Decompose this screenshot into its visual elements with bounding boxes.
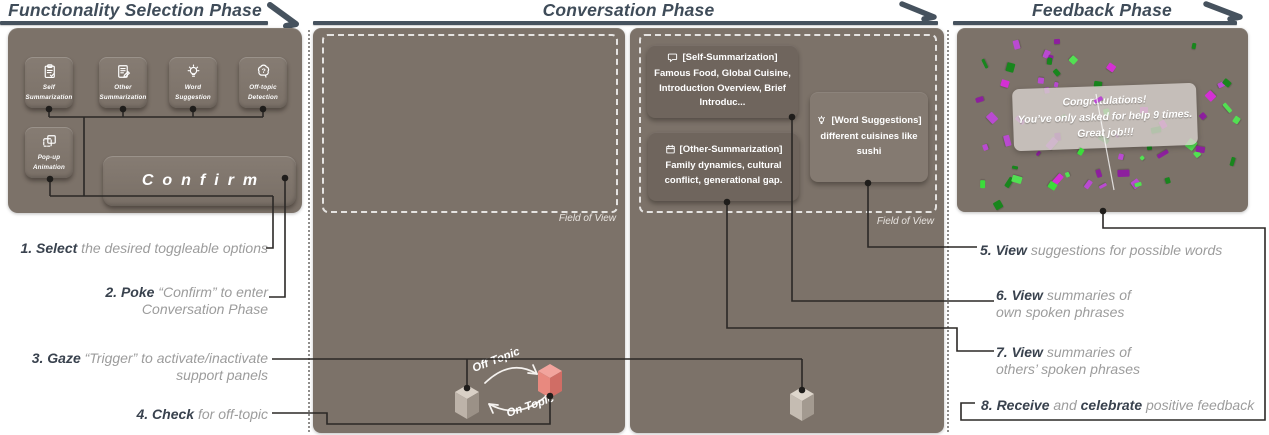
brain-question-icon: ? [255, 63, 272, 80]
confetti-piece [1054, 81, 1059, 87]
confetti-piece [1196, 146, 1206, 153]
other-summarization-card[interactable]: [Other-Summarization] Family dynamics, c… [648, 132, 799, 201]
lightbulb-icon [185, 63, 202, 80]
field-of-view-label: Field of View [498, 213, 616, 224]
confetti-piece [1222, 103, 1232, 114]
toggle-word-suggestion[interactable]: Word Suggestion [169, 57, 217, 108]
confetti-piece [1004, 177, 1014, 189]
confetti-piece [1012, 175, 1023, 184]
conversation-panel-active: Field of View [Self-Summarization] Famou… [630, 28, 944, 433]
toggle-label: Off-topic Detection [248, 83, 278, 102]
confetti-piece [1118, 170, 1130, 177]
svg-text:?: ? [261, 68, 265, 75]
word-suggestions-card[interactable]: [Word Suggestions] different cuisines li… [810, 92, 928, 182]
card-body: Family dynamics, cultural conflict, gene… [654, 159, 793, 188]
document-edit-icon [115, 63, 132, 80]
card-title: [Self-Summarization] [682, 52, 777, 63]
phase-divider [308, 30, 310, 432]
toggle-label: Word Suggestion [175, 83, 211, 102]
confetti-piece [993, 200, 1004, 211]
confetti-piece [982, 143, 988, 150]
toggle-popup-animation[interactable]: Pop-up Animation [25, 127, 73, 178]
step-5-view-word-suggestions: 5. View suggestions for possible words [980, 242, 1269, 259]
conversation-panel-empty: Field of View [313, 28, 625, 433]
feedback-message-line: Great job!!! [1077, 124, 1134, 142]
confetti-piece [1047, 54, 1054, 62]
step-8-receive-feedback: 8. Receive and celebrate positive feedba… [981, 397, 1269, 414]
toggle-other-summarization[interactable]: Other Summarization [99, 57, 147, 108]
confetti-piece [1000, 79, 1009, 88]
confetti-piece [1047, 57, 1053, 65]
phase-divider [947, 30, 949, 432]
confetti-piece [986, 111, 999, 124]
bulb-icon [816, 115, 827, 126]
header-bar-conversation [313, 21, 938, 25]
confetti-piece [1064, 172, 1069, 178]
confetti-piece [1038, 77, 1045, 83]
confetti-piece [1012, 165, 1019, 169]
confetti-piece [1118, 153, 1125, 160]
confetti-piece [1084, 179, 1093, 189]
confetti-piece [1047, 181, 1057, 191]
step-2-poke-confirm: 2. Poke “Confirm” to enter Conversation … [0, 284, 268, 318]
header-bar-functionality [0, 21, 268, 25]
confetti-piece [1003, 135, 1011, 147]
confetti-piece [1005, 62, 1015, 72]
header-conversation-phase: Conversation Phase [313, 0, 944, 21]
card-title: [Word Suggestions] [831, 115, 921, 126]
confetti-piece [1130, 178, 1141, 189]
field-of-view-label: Field of View [816, 216, 934, 227]
functionality-panel: Self Summarization Other Summarization W… [8, 28, 302, 213]
confetti-piece [1139, 155, 1144, 160]
confetti-piece [1217, 81, 1225, 88]
confetti-piece [1012, 40, 1020, 50]
layers-icon [41, 133, 58, 150]
confetti-piece [1192, 42, 1197, 48]
header-functionality-phase: Functionality Selection Phase [0, 0, 270, 21]
confetti-piece [1165, 177, 1171, 184]
toggle-self-summarization[interactable]: Self Summarization [25, 57, 73, 108]
arrow-down-right-icon [1202, 0, 1250, 29]
arrow-down-right-icon [898, 0, 944, 29]
confetti-piece [975, 97, 984, 104]
confetti-piece [1199, 112, 1208, 121]
confirm-button[interactable]: Confirm [103, 156, 296, 206]
feedback-panel: Congratulations! You’ve only asked for h… [957, 28, 1248, 212]
confetti-piece [1035, 150, 1040, 156]
confetti-piece [1193, 149, 1201, 157]
toggle-off-topic-detection[interactable]: ? Off-topic Detection [239, 57, 287, 108]
confetti-piece [1054, 39, 1060, 44]
card-title: [Other-Summarization] [680, 144, 783, 155]
confetti-piece [981, 59, 988, 69]
chat-bubble-icon [667, 52, 678, 63]
feedback-message-box: Congratulations! You’ve only asked for h… [1012, 83, 1198, 151]
figure-canvas: Functionality Selection Phase Conversati… [0, 0, 1269, 435]
confetti-piece [1052, 68, 1060, 76]
confetti-piece [1134, 182, 1142, 188]
field-of-view-frame [322, 34, 618, 213]
confetti-piece [1157, 149, 1169, 159]
step-4-check-off-topic: 4. Check for off-topic [0, 406, 268, 423]
card-body: Famous Food, Global Cuisine, Introductio… [653, 67, 792, 111]
toggle-label: Self Summarization [26, 83, 73, 102]
card-body: different cuisines like sushi [816, 130, 922, 159]
toggle-label: Pop-up Animation [33, 153, 65, 172]
confetti-piece [1146, 146, 1151, 151]
step-1-select-options: 1. Select the desired toggleable options [0, 240, 268, 257]
header-bar-feedback [953, 21, 1237, 25]
confetti-piece [1051, 173, 1063, 186]
clipboard-check-icon [41, 63, 58, 80]
confetti-piece [980, 180, 985, 188]
toggle-label: Other Summarization [100, 83, 147, 102]
step-7-view-others-summaries: 7. View summaries of others’ spoken phra… [996, 344, 1269, 378]
confetti-piece [1105, 62, 1116, 73]
confetti-piece [1232, 115, 1241, 124]
confetti-piece [1099, 182, 1107, 189]
confetti-piece [1042, 49, 1050, 58]
step-6-view-own-summaries: 6. View summaries of own spoken phrases [996, 287, 1269, 321]
calendar-icon [665, 144, 676, 155]
confetti-piece [1095, 169, 1102, 178]
confetti-piece [1205, 90, 1217, 102]
confetti-piece [1222, 78, 1232, 88]
self-summarization-card[interactable]: [Self-Summarization] Famous Food, Global… [647, 45, 798, 118]
confetti-piece [1068, 55, 1078, 65]
confetti-piece [1229, 157, 1235, 166]
step-3-gaze-trigger: 3. Gaze “Trigger” to activate/inactivate… [0, 350, 268, 384]
